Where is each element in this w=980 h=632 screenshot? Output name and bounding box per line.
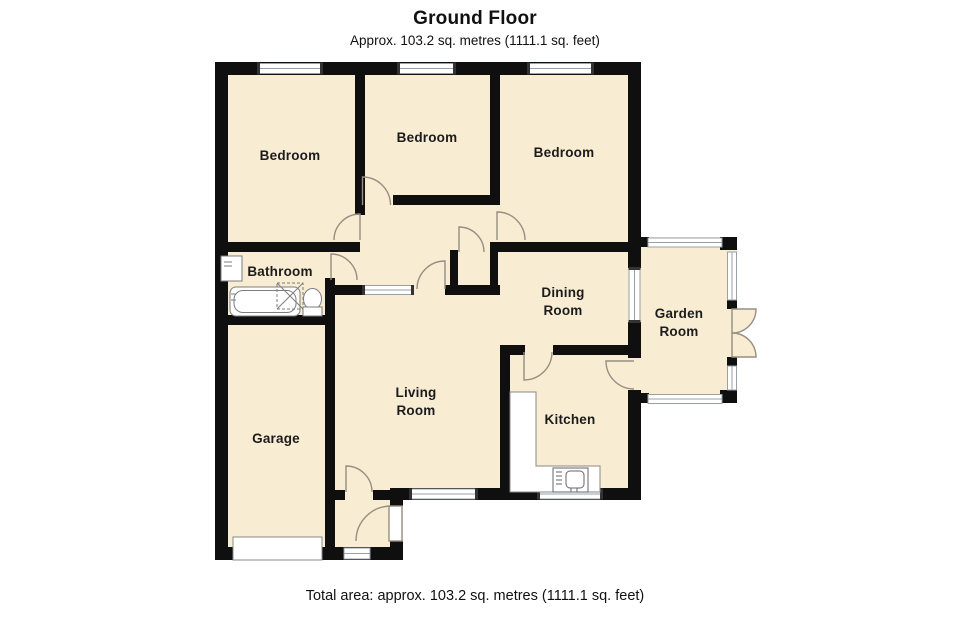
- window-dining-garden: [629, 267, 641, 323]
- window-garden-right-upper: [728, 252, 737, 300]
- window-hall-internal: [362, 285, 414, 295]
- room-label-bedroom-left: Bedroom: [260, 148, 321, 163]
- kitchen-sink-icon: [553, 468, 588, 492]
- room-label-bathroom: Bathroom: [247, 264, 312, 279]
- total-area-text: Total area: approx. 103.2 sq. metres (11…: [0, 588, 950, 604]
- room-label-dining-2: Room: [543, 303, 582, 318]
- bathtub-icon: [230, 287, 300, 316]
- window-garden-bottom: [648, 395, 722, 404]
- room-label-living-1: Living: [396, 385, 437, 400]
- room-label-bedroom-middle: Bedroom: [397, 130, 458, 145]
- window-porch: [344, 548, 370, 559]
- room-label-bedroom-right: Bedroom: [534, 145, 595, 160]
- room-label-dining-1: Dining: [541, 285, 584, 300]
- floor-plan: Bedroom Bedroom Bedroom Bathroom Dining …: [0, 0, 980, 632]
- window-bedroom-right: [527, 63, 594, 75]
- room-label-garden-1: Garden: [655, 306, 703, 321]
- window-garden-top: [648, 238, 722, 247]
- french-doors-garden: [732, 309, 756, 357]
- room-label-garden-2: Room: [659, 324, 698, 339]
- room-label-garage: Garage: [252, 431, 300, 446]
- wash-basin-icon: [221, 256, 242, 281]
- toilet-icon: [303, 289, 322, 317]
- window-living-room: [409, 489, 478, 500]
- room-label-kitchen: Kitchen: [545, 412, 596, 427]
- room-label-living-2: Room: [396, 403, 435, 418]
- window-bedroom-middle: [397, 63, 456, 75]
- garage-door-icon: [233, 537, 322, 560]
- window-bedroom-left: [257, 63, 323, 75]
- floorplan-page: Ground Floor Approx. 103.2 sq. metres (1…: [0, 0, 980, 632]
- window-garden-right-lower: [728, 366, 737, 390]
